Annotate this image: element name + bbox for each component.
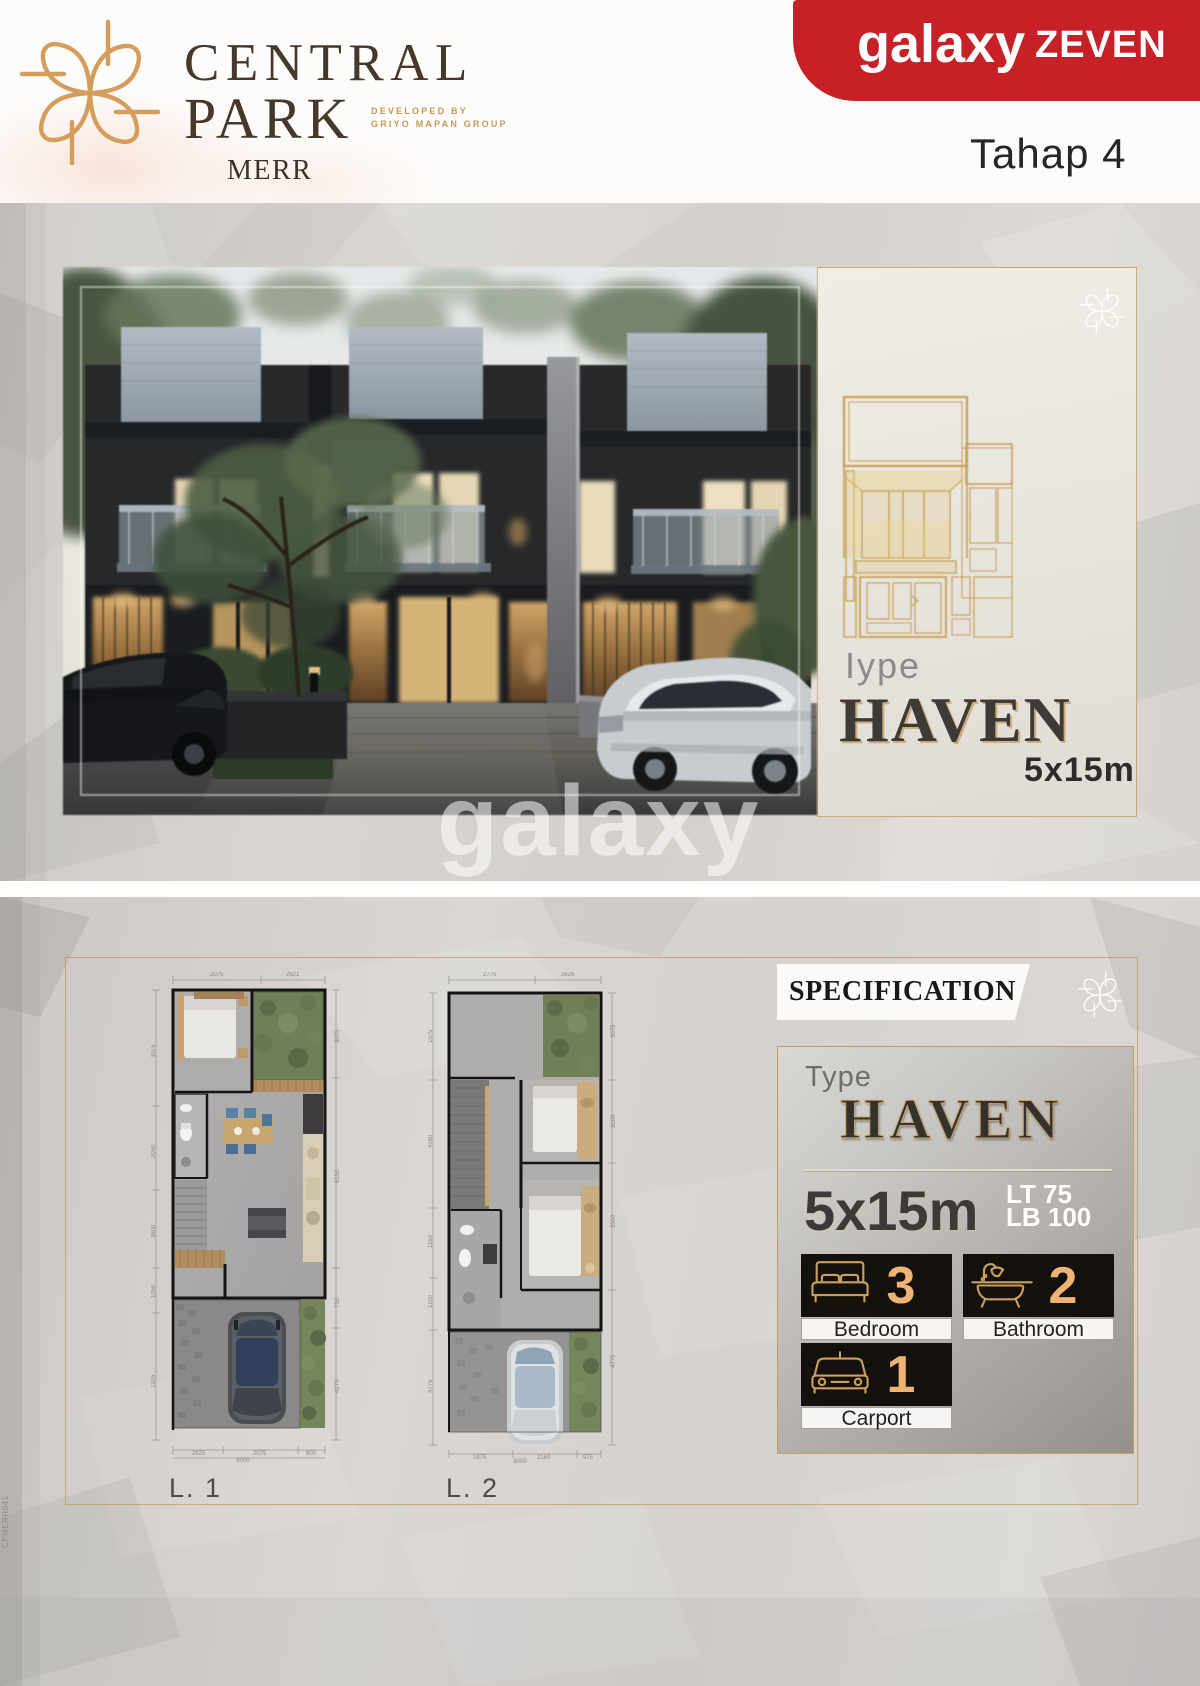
svg-text:1160: 1160	[428, 1234, 434, 1248]
svg-text:1100: 1100	[428, 1294, 434, 1308]
svg-text:3000: 3000	[611, 1114, 617, 1128]
svg-text:3600: 3600	[151, 1224, 157, 1238]
svg-text:2625: 2625	[192, 1451, 206, 1457]
svg-text:975: 975	[583, 1455, 594, 1461]
svg-text:2626: 2626	[561, 972, 575, 978]
svg-text:6150: 6150	[335, 1169, 341, 1183]
svg-text:4775: 4775	[428, 1379, 434, 1393]
svg-text:1075: 1075	[428, 1029, 434, 1043]
svg-text:750: 750	[335, 1297, 341, 1308]
svg-text:4775: 4775	[611, 1354, 617, 1368]
svg-text:4275: 4275	[335, 1379, 341, 1393]
svg-text:3075: 3075	[151, 1044, 157, 1058]
svg-text:2075: 2075	[253, 1451, 267, 1457]
svg-text:6000: 6000	[513, 1459, 527, 1463]
svg-text:4160: 4160	[428, 1134, 434, 1148]
svg-text:3500: 3500	[611, 1214, 617, 1228]
svg-text:2075: 2075	[210, 972, 224, 978]
svg-text:1925: 1925	[151, 1374, 157, 1388]
svg-text:900: 900	[306, 1451, 317, 1457]
svg-text:6000: 6000	[236, 1458, 250, 1463]
svg-text:3075: 3075	[335, 1029, 341, 1043]
svg-text:3075: 3075	[611, 1024, 617, 1038]
svg-text:1050: 1050	[151, 1284, 157, 1298]
svg-text:1875: 1875	[473, 1455, 487, 1461]
svg-text:2775: 2775	[483, 972, 497, 978]
svg-text:2160: 2160	[537, 1455, 551, 1461]
svg-text:2050: 2050	[151, 1144, 157, 1158]
svg-text:2621: 2621	[286, 972, 300, 978]
